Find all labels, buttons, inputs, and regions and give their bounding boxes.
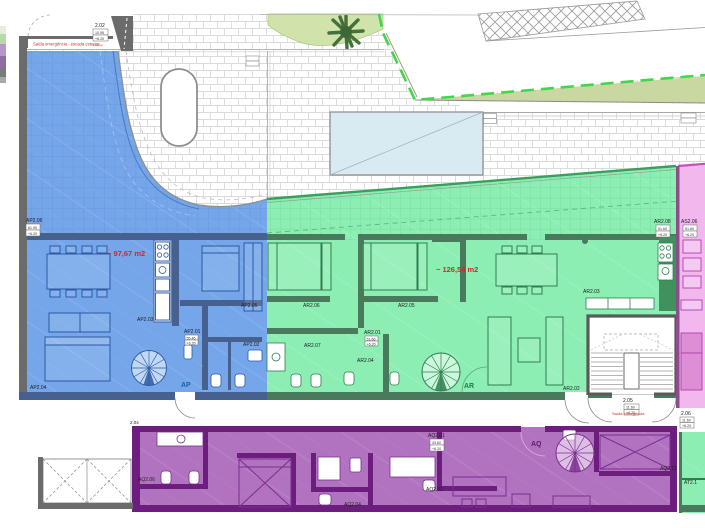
svg-text:AP2.01: AP2.01	[184, 329, 201, 335]
svg-text:+6.20: +6.20	[28, 232, 37, 236]
svg-text:+6.20: +6.20	[658, 233, 667, 237]
svg-text:AR2.07: AR2.07	[304, 343, 321, 349]
svg-text:~ 97,67 m2: ~ 97,67 m2	[107, 249, 145, 258]
svg-text:51.60: 51.60	[658, 227, 667, 231]
svg-text:61.95: 61.95	[28, 226, 37, 230]
svg-text:AR2.06: AR2.06	[303, 303, 320, 309]
svg-text:+6.20: +6.20	[95, 37, 104, 41]
svg-text:11.60: 11.60	[626, 406, 635, 410]
svg-text:+6.20: +6.20	[187, 342, 196, 346]
svg-text:AP2.04: AP2.04	[30, 385, 47, 391]
svg-text:AP2.02: AP2.02	[243, 342, 260, 348]
svg-text:2.02: 2.02	[95, 23, 105, 29]
svg-text:+6.20: +6.20	[685, 233, 694, 237]
svg-text:Saída emergência - escada exte: Saída emergência - escada exterior	[33, 42, 100, 47]
svg-text:43.60: 43.60	[432, 441, 441, 445]
svg-text:10.95: 10.95	[95, 31, 104, 35]
svg-text:AP: AP	[181, 382, 191, 389]
svg-text:AQ2.06: AQ2.06	[138, 477, 155, 483]
svg-text:AS2.06: AS2.06	[681, 219, 698, 225]
svg-text:+6.20: +6.20	[432, 447, 441, 451]
svg-text:AQ2.11: AQ2.11	[660, 466, 677, 472]
svg-text:2.06: 2.06	[681, 411, 691, 417]
svg-text:51.60: 51.60	[685, 227, 694, 231]
svg-text:AQ: AQ	[531, 441, 542, 448]
svg-text:~ 126,54 m2: ~ 126,54 m2	[436, 265, 478, 274]
svg-text:AT2.1: AT2.1	[684, 480, 697, 486]
svg-text:AR2.05: AR2.05	[398, 303, 415, 309]
svg-text:AP2.06: AP2.06	[26, 218, 43, 224]
svg-text:Saída emergência: Saída emergência	[612, 411, 645, 416]
svg-text:2.05: 2.05	[623, 398, 633, 404]
svg-text:AR: AR	[464, 383, 474, 390]
svg-text:AR2.03: AR2.03	[583, 289, 600, 295]
svg-text:AQ2.02: AQ2.02	[426, 487, 443, 493]
svg-text:+6.20: +6.20	[682, 424, 691, 428]
svg-text:AR2.01: AR2.01	[364, 330, 381, 336]
svg-text:AR2.04: AR2.04	[357, 358, 374, 364]
svg-text:11.60: 11.60	[682, 419, 691, 423]
svg-text:AQ2.04: AQ2.04	[344, 502, 361, 508]
svg-text:55.46: 55.46	[187, 337, 196, 341]
svg-text:AR2.02: AR2.02	[563, 386, 580, 392]
svg-text:51.66: 51.66	[367, 338, 376, 342]
svg-text:AP2.03: AP2.03	[137, 317, 154, 323]
svg-text:+6.20: +6.20	[367, 343, 376, 347]
svg-text:AQ2.01: AQ2.01	[428, 433, 445, 439]
svg-text:AP2.05: AP2.05	[241, 303, 258, 309]
svg-text:AR2.08: AR2.08	[654, 219, 671, 225]
svg-text:2.04: 2.04	[130, 420, 139, 425]
